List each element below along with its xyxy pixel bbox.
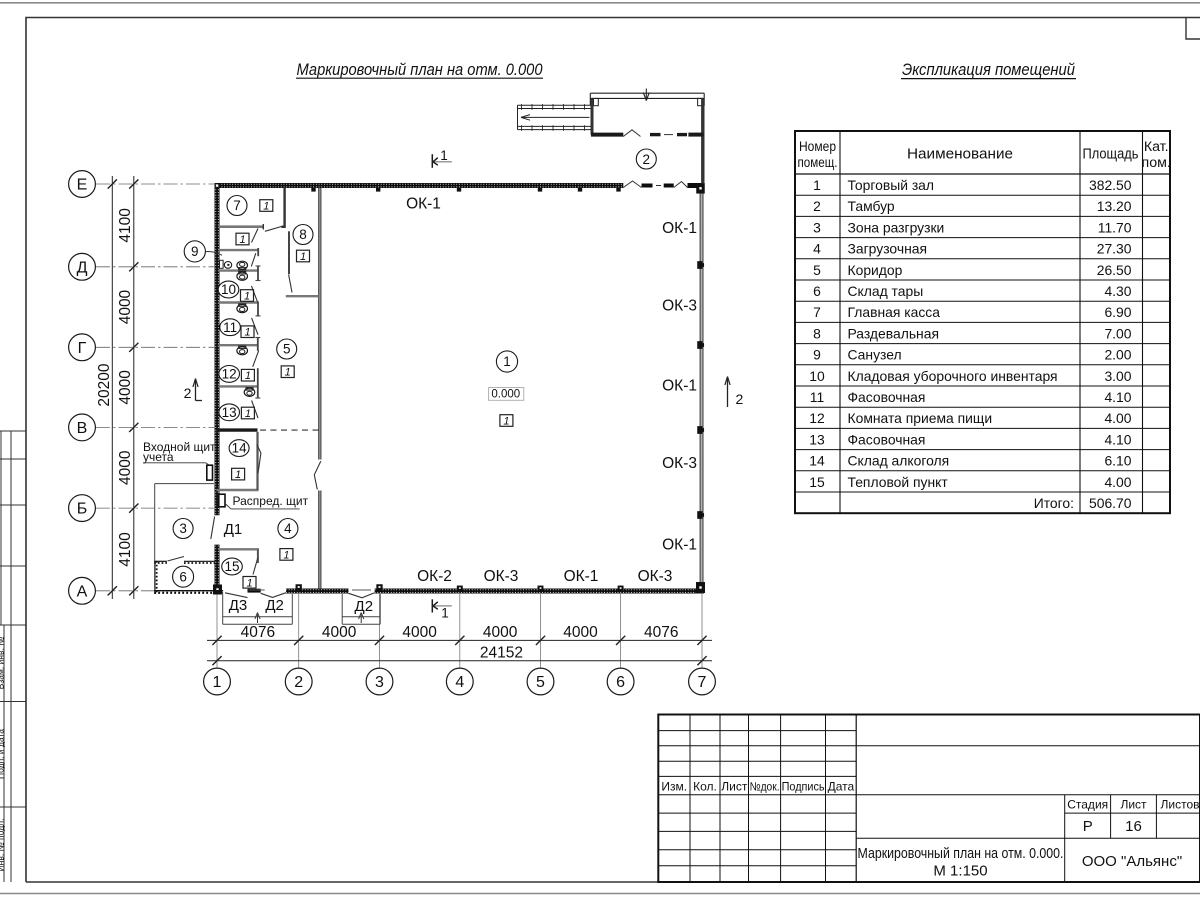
svg-text:6: 6 xyxy=(179,569,187,584)
svg-text:Зона разгрузки: Зона разгрузки xyxy=(848,219,945,235)
svg-text:1: 1 xyxy=(285,367,291,379)
svg-text:26.50: 26.50 xyxy=(1097,262,1132,278)
svg-text:1: 1 xyxy=(246,577,252,589)
svg-text:5: 5 xyxy=(536,674,545,691)
svg-text:3: 3 xyxy=(179,521,187,536)
svg-text:2: 2 xyxy=(184,385,192,401)
svg-text:14: 14 xyxy=(809,453,825,469)
svg-text:4000: 4000 xyxy=(117,370,134,405)
svg-text:11: 11 xyxy=(223,320,237,335)
svg-text:4000: 4000 xyxy=(483,624,518,641)
svg-text:Тамбур: Тамбур xyxy=(848,198,895,214)
svg-text:Изм.: Изм. xyxy=(661,779,687,793)
svg-text:Лист: Лист xyxy=(721,779,748,793)
svg-text:Склад алкоголя: Склад алкоголя xyxy=(848,453,950,469)
svg-text:3.00: 3.00 xyxy=(1104,368,1131,384)
svg-text:Раздевальная: Раздевальная xyxy=(848,325,939,341)
svg-text:9: 9 xyxy=(813,347,821,363)
svg-text:15: 15 xyxy=(809,474,825,490)
svg-text:1: 1 xyxy=(213,674,222,691)
svg-text:6: 6 xyxy=(616,674,625,691)
svg-text:4: 4 xyxy=(813,241,821,257)
svg-text:8: 8 xyxy=(299,227,307,242)
svg-text:1: 1 xyxy=(283,549,289,561)
svg-text:1: 1 xyxy=(239,234,245,246)
svg-text:ОК-3: ОК-3 xyxy=(638,568,673,585)
svg-text:1: 1 xyxy=(813,177,821,193)
svg-text:Фасовочная: Фасовочная xyxy=(848,431,926,447)
svg-text:Экспликация помещений: Экспликация помещений xyxy=(902,61,1075,79)
svg-text:Коридор: Коридор xyxy=(848,262,903,278)
svg-text:4100: 4100 xyxy=(117,532,134,567)
svg-text:2.00: 2.00 xyxy=(1104,347,1131,363)
svg-text:Д3: Д3 xyxy=(229,597,248,614)
svg-text:Д: Д xyxy=(77,259,88,276)
svg-text:Б: Б xyxy=(77,501,88,518)
svg-text:506.70: 506.70 xyxy=(1089,495,1132,511)
svg-text:12: 12 xyxy=(222,367,237,382)
svg-text:382.50: 382.50 xyxy=(1089,177,1132,193)
svg-text:4000: 4000 xyxy=(117,450,134,485)
svg-text:7: 7 xyxy=(233,198,241,213)
svg-text:11.70: 11.70 xyxy=(1098,219,1132,235)
svg-text:Дата: Дата xyxy=(828,779,855,793)
svg-text:Санузел: Санузел xyxy=(848,347,902,363)
svg-text:3: 3 xyxy=(813,219,821,235)
svg-text:7: 7 xyxy=(813,304,821,320)
svg-text:4.30: 4.30 xyxy=(1104,283,1131,299)
svg-text:4076: 4076 xyxy=(644,624,678,641)
svg-text:15: 15 xyxy=(224,559,239,574)
svg-text:Площадь: Площадь xyxy=(1083,146,1139,163)
svg-text:помещ.: помещ. xyxy=(798,155,838,171)
svg-text:1: 1 xyxy=(441,606,449,621)
svg-text:4000: 4000 xyxy=(402,624,437,641)
svg-text:4: 4 xyxy=(455,674,464,691)
svg-text:Кат.: Кат. xyxy=(1144,139,1169,155)
svg-text:Е: Е xyxy=(77,177,88,194)
svg-text:Итого:: Итого: xyxy=(1034,495,1074,511)
svg-text:4076: 4076 xyxy=(241,624,275,641)
svg-text:Наименование: Наименование xyxy=(907,146,1013,163)
svg-text:20200: 20200 xyxy=(96,363,113,406)
svg-text:ОК-1: ОК-1 xyxy=(662,537,697,554)
svg-text:2: 2 xyxy=(813,198,821,214)
svg-text:ОК-1: ОК-1 xyxy=(406,196,441,213)
svg-text:Распред. щит: Распред. щит xyxy=(233,494,309,508)
svg-text:1: 1 xyxy=(245,408,251,420)
svg-text:4.00: 4.00 xyxy=(1104,410,1131,426)
svg-text:16: 16 xyxy=(1125,818,1142,835)
svg-text:В: В xyxy=(77,420,88,437)
svg-text:Подп. и дата: Подп. и дата xyxy=(0,729,6,779)
svg-text:2: 2 xyxy=(294,674,303,691)
svg-text:1: 1 xyxy=(440,148,448,163)
svg-text:Маркировочный план на отм. 0.0: Маркировочный план на отм. 0.000 xyxy=(297,61,544,79)
svg-text:9: 9 xyxy=(191,244,199,259)
svg-text:Листов: Листов xyxy=(1161,797,1200,811)
svg-text:4000: 4000 xyxy=(322,624,357,641)
svg-text:ОК-3: ОК-3 xyxy=(662,298,697,315)
svg-text:6.90: 6.90 xyxy=(1104,304,1131,320)
svg-text:Инв. № подл.: Инв. № подл. xyxy=(0,819,6,872)
svg-text:Г: Г xyxy=(78,340,87,357)
svg-text:Загрузочная: Загрузочная xyxy=(848,241,927,257)
svg-text:М 1:150: М 1:150 xyxy=(933,863,987,880)
svg-text:3: 3 xyxy=(375,674,384,691)
svg-text:1: 1 xyxy=(503,354,511,369)
svg-text:1: 1 xyxy=(235,469,241,481)
svg-text:0.000: 0.000 xyxy=(491,389,520,401)
svg-text:1: 1 xyxy=(244,327,250,339)
svg-text:Кладовая уборочного инвентаря: Кладовая уборочного инвентаря xyxy=(848,368,1058,384)
svg-text:11: 11 xyxy=(810,389,825,405)
svg-text:1: 1 xyxy=(300,251,306,263)
svg-text:Подпись: Подпись xyxy=(782,779,825,793)
svg-text:4.00: 4.00 xyxy=(1104,474,1131,490)
svg-text:5: 5 xyxy=(813,262,821,278)
svg-text:4: 4 xyxy=(284,521,292,536)
svg-text:10: 10 xyxy=(221,282,236,297)
svg-text:ОК-2: ОК-2 xyxy=(417,568,452,585)
svg-text:13: 13 xyxy=(809,431,825,447)
svg-text:Взам. инв. №: Взам. инв. № xyxy=(0,637,6,690)
svg-text:Тепловой пункт: Тепловой пункт xyxy=(848,474,949,490)
svg-text:Д2: Д2 xyxy=(355,598,374,615)
svg-text:1: 1 xyxy=(245,370,251,382)
svg-text:2: 2 xyxy=(643,152,651,167)
svg-text:7.00: 7.00 xyxy=(1104,325,1131,341)
svg-text:ООО "Альянс": ООО "Альянс" xyxy=(1082,853,1182,870)
svg-text:4000: 4000 xyxy=(563,624,598,641)
svg-text:ОК-1: ОК-1 xyxy=(662,220,697,237)
svg-text:24152: 24152 xyxy=(480,644,523,661)
svg-text:Комната приема пищи: Комната приема пищи xyxy=(848,410,993,426)
svg-text:Д2: Д2 xyxy=(265,597,284,614)
svg-text:ОК-3: ОК-3 xyxy=(484,568,519,585)
svg-text:2: 2 xyxy=(736,391,744,407)
svg-text:пом.: пом. xyxy=(1142,155,1171,171)
svg-text:Фасовочная: Фасовочная xyxy=(848,389,926,405)
svg-text:6: 6 xyxy=(813,283,821,299)
svg-text:4100: 4100 xyxy=(117,208,134,243)
svg-text:А: А xyxy=(77,583,88,600)
svg-text:Д1: Д1 xyxy=(224,521,243,538)
svg-text:Стадия: Стадия xyxy=(1067,797,1108,811)
svg-text:учета: учета xyxy=(143,450,174,464)
svg-text:14: 14 xyxy=(232,441,248,456)
svg-text:Торговый зал: Торговый зал xyxy=(848,177,935,193)
svg-text:№док.: №док. xyxy=(750,779,780,793)
svg-text:7: 7 xyxy=(698,674,707,691)
svg-text:Главная касса: Главная касса xyxy=(848,304,941,320)
svg-text:12: 12 xyxy=(809,410,825,426)
svg-text:Маркировочный план на отм. 0.0: Маркировочный план на отм. 0.000. xyxy=(858,845,1064,862)
svg-text:4.10: 4.10 xyxy=(1104,431,1131,447)
svg-text:13: 13 xyxy=(222,405,237,420)
svg-text:27.30: 27.30 xyxy=(1097,241,1132,257)
svg-text:4000: 4000 xyxy=(117,289,134,324)
svg-text:ОК-1: ОК-1 xyxy=(662,378,697,395)
svg-text:Номер: Номер xyxy=(799,139,836,155)
svg-text:Склад тары: Склад тары xyxy=(848,283,924,299)
svg-text:1: 1 xyxy=(263,201,269,213)
svg-text:5: 5 xyxy=(283,342,291,357)
svg-text:ОК-1: ОК-1 xyxy=(564,568,599,585)
svg-text:8: 8 xyxy=(813,325,821,341)
svg-text:13.20: 13.20 xyxy=(1097,198,1132,214)
svg-text:4.10: 4.10 xyxy=(1104,389,1131,405)
svg-text:Лист: Лист xyxy=(1120,797,1147,811)
svg-text:6.10: 6.10 xyxy=(1104,453,1131,469)
svg-text:10: 10 xyxy=(809,368,825,384)
svg-text:Кол.: Кол. xyxy=(693,779,717,793)
svg-text:1: 1 xyxy=(503,416,509,428)
svg-text:Р: Р xyxy=(1083,818,1093,835)
svg-text:1: 1 xyxy=(244,291,250,303)
svg-text:ОК-3: ОК-3 xyxy=(662,455,697,472)
